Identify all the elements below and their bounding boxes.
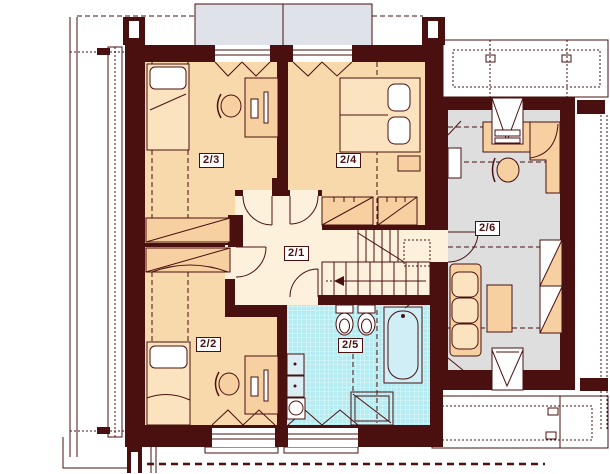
sofa (450, 264, 481, 356)
radiator (448, 148, 461, 178)
wardrobe (540, 240, 562, 333)
roof-window (492, 348, 523, 390)
room-label-2-1: 2/1 (284, 246, 309, 261)
wardrobe (146, 248, 230, 272)
roof-overhang-top-right (443, 40, 608, 97)
roof-window (492, 98, 523, 144)
desk (245, 356, 278, 414)
roof-overhang-bottom-right (432, 396, 608, 448)
room-label-2-6: 2/6 (475, 221, 500, 236)
coffee-table (487, 285, 512, 332)
single-bed (147, 64, 189, 150)
room-label-2-5: 2/5 (338, 338, 363, 353)
toilet (336, 305, 353, 335)
desk (245, 78, 278, 137)
floor-plan-drawing (0, 0, 610, 474)
dormer (195, 4, 372, 47)
room-label-2-4: 2/4 (336, 153, 361, 168)
room-label-2-2: 2/2 (196, 337, 221, 352)
washing-machine (287, 398, 305, 419)
wardrobe (146, 218, 230, 242)
washbasin (287, 354, 304, 375)
bidet (358, 305, 375, 335)
wardrobe (322, 197, 417, 225)
nightstand (398, 156, 420, 171)
floor-plan: 2/1 2/2 2/3 2/4 2/5 2/6 (0, 0, 610, 474)
chimney (123, 17, 145, 45)
room-label-2-3: 2/3 (199, 153, 224, 168)
washbasin (287, 376, 304, 397)
chimney (422, 17, 445, 45)
bathtub (384, 298, 422, 383)
single-bed (147, 342, 190, 425)
